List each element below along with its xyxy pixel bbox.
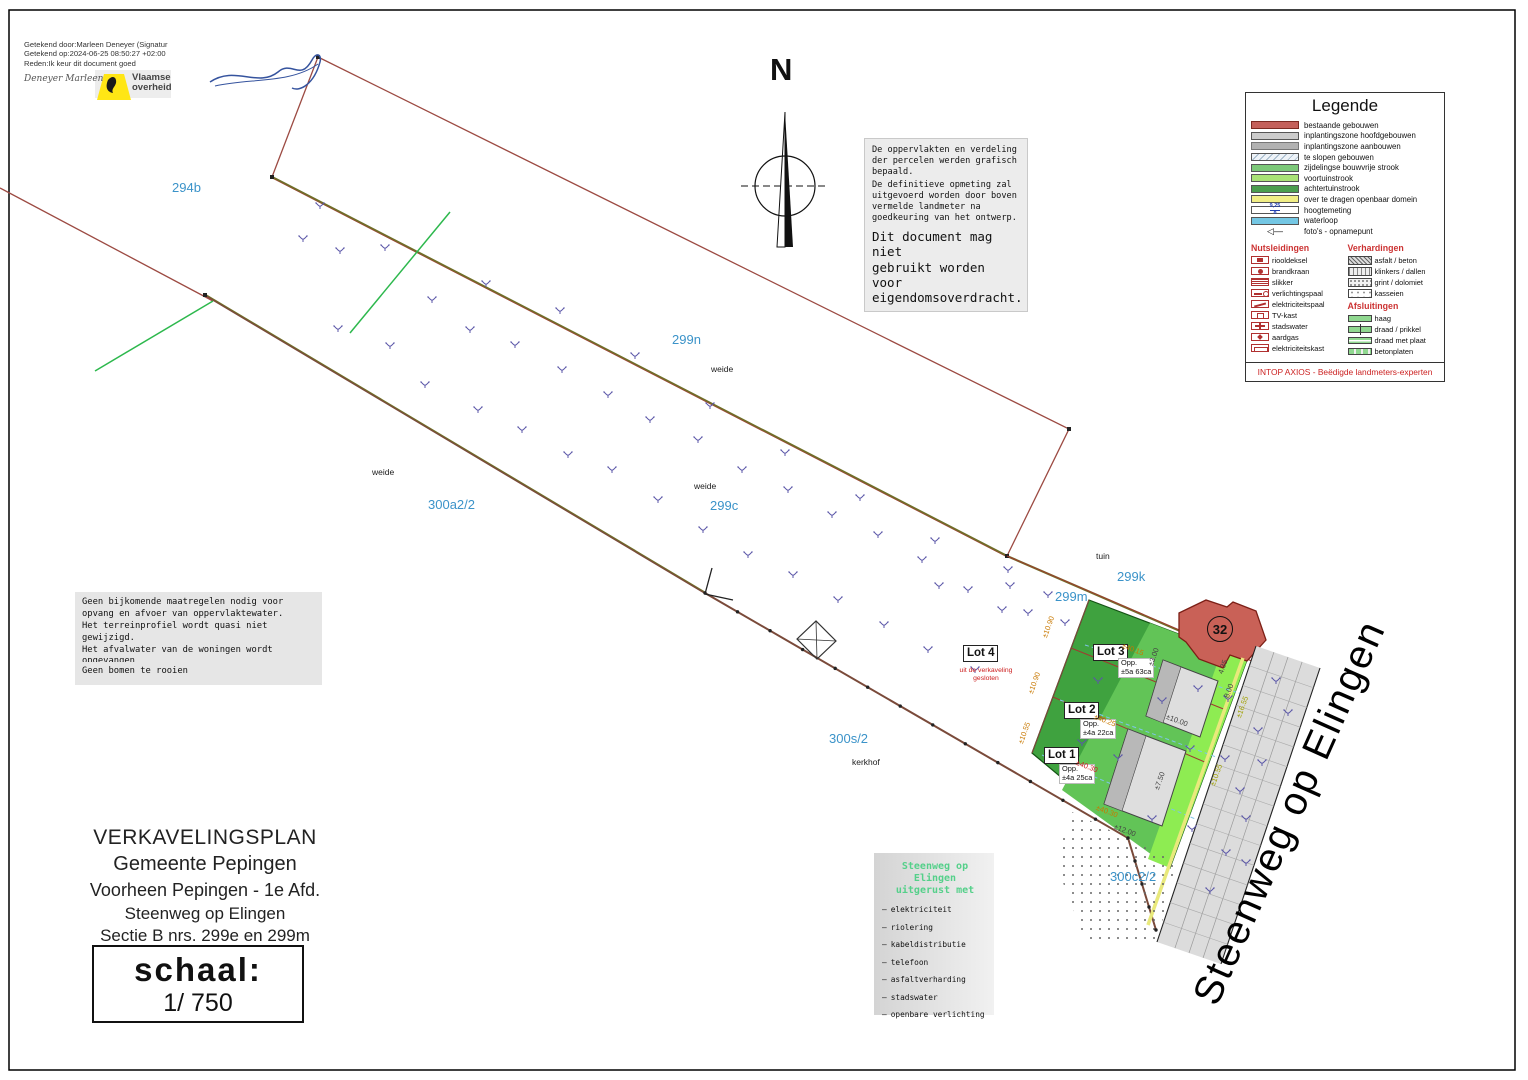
nutsleidingen-items: riooldekselbrandkraanslikkerverlichtings… <box>1251 255 1344 354</box>
notice-para-1: De oppervlakten en verdeling der percele… <box>872 145 1020 178</box>
te-slopen-gebouwen-swatch <box>1251 153 1299 161</box>
north-label: N <box>770 52 792 88</box>
handwritten-signature: Deneyer Marleen <box>24 74 168 85</box>
building-number: 32 <box>1207 616 1233 642</box>
north-arrow-icon <box>741 112 829 247</box>
notice-para-2: De definitieve opmeting zal uitgevoerd w… <box>872 180 1020 224</box>
zijdelingse-bouwvrije-strook-swatch <box>1251 164 1299 172</box>
afsluitingen-title: Afsluitingen <box>1348 301 1441 311</box>
legend-row: ◁—foto's - opnamepunt <box>1246 226 1444 237</box>
klinkers-dallen-icon <box>1348 267 1372 276</box>
utility-item: –kabeldistributie <box>882 940 988 949</box>
title-block: VERKAVELINGSPLAN Gemeente Pepingen Voorh… <box>55 826 355 946</box>
waterloop-swatch <box>1251 217 1299 225</box>
legend: Legende bestaande gebouweninplantingszon… <box>1245 92 1445 382</box>
legend-footer: INTOP AXIOS - Beëdigde landmeters-expert… <box>1246 362 1444 381</box>
inplantingszone-aanbouwen-swatch <box>1251 142 1299 150</box>
tv-kast-icon <box>1251 311 1269 319</box>
betonplaten-icon <box>1348 348 1372 355</box>
kasseien-icon <box>1348 289 1372 298</box>
legend-title: Legende <box>1246 96 1444 116</box>
haag-icon <box>1348 315 1372 322</box>
legend-row: zijdelingse bouwvrije strook <box>1246 162 1444 173</box>
draad-prikkel-icon <box>1348 326 1372 333</box>
boundary-structures <box>705 568 836 659</box>
legend-row: waterloop <box>1246 215 1444 226</box>
utilities-items: –elektriciteit–riolering–kabeldistributi… <box>882 905 988 1019</box>
scale-label: schaal: <box>94 951 302 989</box>
riooldeksel-icon <box>1251 256 1269 264</box>
legend-row: bestaande gebouwen <box>1246 120 1444 131</box>
nutsleidingen-title: Nutsleidingen <box>1251 243 1344 253</box>
utility-item: –riolering <box>882 923 988 932</box>
trees-note-box: Geen bomen te rooien <box>75 662 322 680</box>
utility-item: –stadswater <box>882 993 988 1002</box>
plan-title: VERKAVELINGSPLAN <box>55 826 355 850</box>
legend-row: inplantingszone aanbouwen <box>1246 141 1444 152</box>
utility-item: –elektriciteit <box>882 905 988 914</box>
street: Steenweg op Elingen <box>55 904 355 924</box>
scale-box: schaal: 1/ 750 <box>92 945 304 1023</box>
section: Sectie B nrs. 299e en 299m <box>55 926 355 946</box>
signed-by-line: Getekend door:Marleen Deneyer (Signatur <box>24 40 168 49</box>
scale-value: 1/ 750 <box>94 989 302 1018</box>
elektriciteitskast-icon <box>1251 344 1269 352</box>
legend-row: achtertuinstrook <box>1246 184 1444 195</box>
legend-row: inplantingszone hoofdgebouwen <box>1246 131 1444 142</box>
grint-dolomiet-icon <box>1348 278 1372 287</box>
voortuinstrook-swatch <box>1251 174 1299 182</box>
verhardingen-title: Verhardingen <box>1348 243 1441 253</box>
achtertuinstrook-swatch <box>1251 185 1299 193</box>
notice-para-3: Dit document mag niet gebruikt worden vo… <box>872 229 1020 305</box>
reason-line: Reden:Ik keur dit document goed <box>24 59 168 68</box>
signed-on-line: Getekend op:2024-06-25 08:50:27 +02:00 <box>24 49 168 58</box>
municipality: Gemeente Pepingen <box>55 853 355 876</box>
stadswater-icon <box>1251 322 1269 330</box>
afsluitingen-items: haagdraad / prikkeldraad met plaatbetonp… <box>1348 313 1441 357</box>
asfalt-beton-icon <box>1348 256 1372 265</box>
utility-item: –telefoon <box>882 958 988 967</box>
legend-row: voortuinstrook <box>1246 173 1444 184</box>
utilities-box: Steenweg op Elingen uitgerust met –elekt… <box>874 853 994 1015</box>
legend-area-rows: bestaande gebouweninplantingszone hoofdg… <box>1246 120 1444 237</box>
elektriciteitspaal-icon <box>1251 300 1269 308</box>
bestaande-gebouwen-swatch <box>1251 121 1299 129</box>
aardgas-icon <box>1251 333 1269 341</box>
former-name: Voorheen Pepingen - 1e Afd. <box>55 880 355 901</box>
inplantingszone-hoofdgebouwen-swatch <box>1251 132 1299 140</box>
utility-item: –asfaltverharding <box>882 975 988 984</box>
legend-row: te slopen gebouwen <box>1246 152 1444 163</box>
brandkraan-icon <box>1251 267 1269 275</box>
utilities-title: Steenweg op Elingen uitgerust met <box>882 861 988 897</box>
slikker-icon <box>1251 278 1269 286</box>
draad-plaat-icon <box>1348 337 1372 344</box>
verhardingen-items: asfalt / betonklinkers / dallengrint / d… <box>1348 255 1441 299</box>
plan-sheet: Getekend door:Marleen Deneyer (Signatur … <box>0 0 1528 1080</box>
signature-squiggle <box>210 55 320 89</box>
utility-item: –openbare verlichting <box>882 1010 988 1019</box>
legend-row: 9,258hoogtemeting <box>1246 205 1444 216</box>
signature-block: Getekend door:Marleen Deneyer (Signatur … <box>24 40 168 85</box>
parcel-boundaries <box>0 55 1247 930</box>
foto-s-opnamepunt-swatch: ◁— <box>1251 227 1299 235</box>
notice-box: De oppervlakten en verdeling der percele… <box>864 138 1028 312</box>
verlichtingspaal-icon <box>1251 289 1269 297</box>
hoogtemeting-swatch: 9,258 <box>1251 206 1299 214</box>
